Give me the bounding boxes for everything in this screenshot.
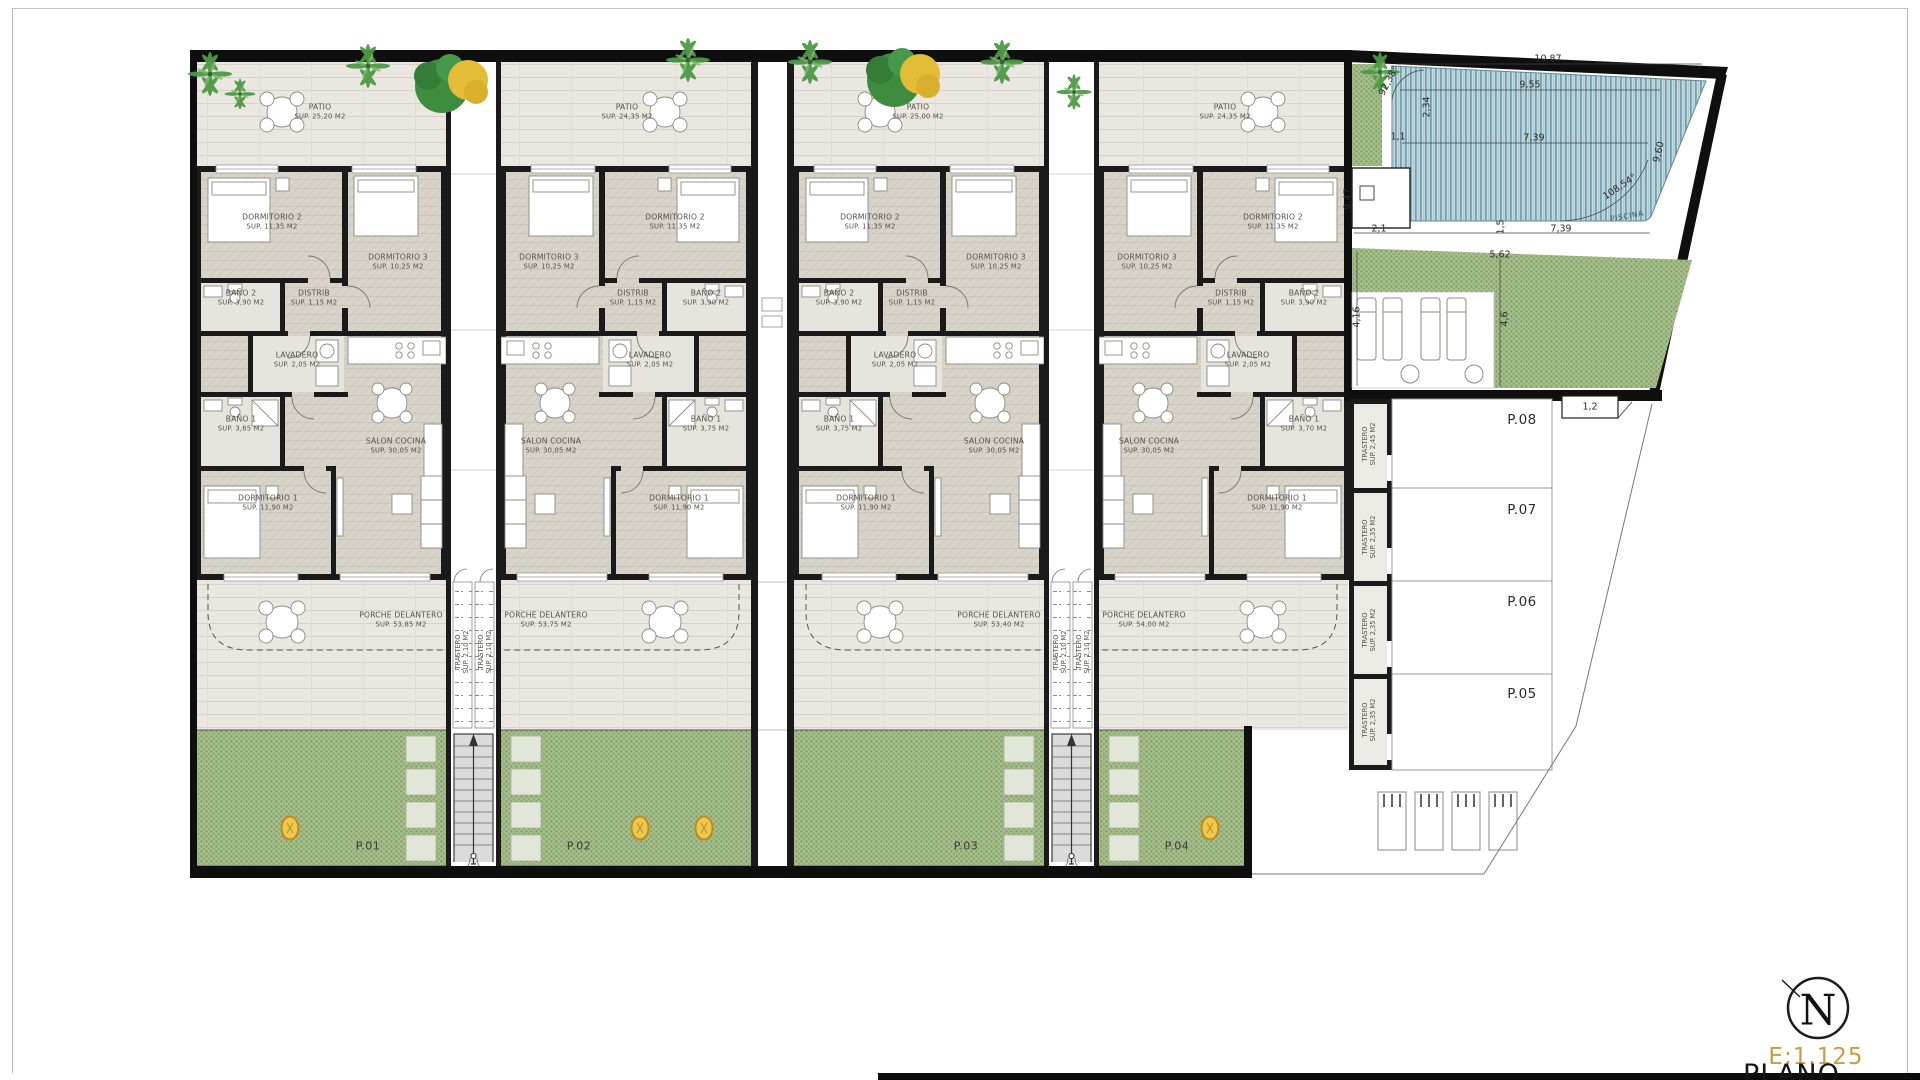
core2-trastero-a-label: TRASTEROSUP. 2,10 M2 [1052,631,1068,674]
room-label-distrib-4: DISTRIBSUP. 1,15 M2 [1208,289,1255,308]
plot-label-p03: P.03 [954,840,978,853]
room-label-salon-3: SALON COCINASUP. 30,05 M2 [964,437,1024,456]
dim-1-2: 1,2 [1582,402,1597,413]
storage-yards [1392,399,1552,770]
storage-label-p05: TRASTEROSUP. 2,35 M2 [1361,699,1377,742]
core2-trastero-b-label: TRASTEROSUP. 2,10 M2 [1075,631,1091,674]
plan-drawing [0,0,1920,1080]
room-label-lavadero-3: LAVADEROSUP. 2,05 M2 [872,351,919,370]
room-label-dorm3-2: DORMITORIO 3SUP. 10,25 M2 [519,253,579,272]
core1-trastero-b-label: TRASTEROSUP. 2,10 M2 [477,631,493,674]
dim-2-1: 2,1 [1371,224,1386,235]
yard-label-p07: P.07 [1507,502,1537,518]
dim-5-62: 5,62 [1489,250,1510,261]
plot-label-p02: P.02 [567,840,591,853]
room-label-distrib-2: DISTRIBSUP. 1,15 M2 [610,289,657,308]
dim-1-5: 1,5 [1496,219,1507,234]
sunbeds [1352,292,1494,388]
floor-plan-sheet: PATIOSUP. 25,20 M2 DORMITORIO 2SUP. 11,3… [0,0,1920,1080]
room-label-bano1-4: BAÑO 1SUP. 3,70 M2 [1281,415,1328,434]
pool-equipment-room [1352,168,1410,228]
room-label-lavadero-4: LAVADEROSUP. 2,05 M2 [1225,351,1272,370]
yard-label-p05: P.05 [1507,686,1537,702]
room-label-porche-2: PORCHE DELANTEROSUP. 53,75 M2 [504,611,588,630]
yard-label-p06: P.06 [1507,594,1537,610]
room-label-salon-4: SALON COCINASUP. 30,05 M2 [1119,437,1179,456]
room-label-salon-2: SALON COCINASUP. 30,05 M2 [521,437,581,456]
room-label-dorm2-2: DORMITORIO 2SUP. 11,35 M2 [645,213,705,232]
room-label-porche-1: PORCHE DELANTEROSUP. 53,85 M2 [359,611,443,630]
dim-9-47: 9,47 [1343,188,1354,209]
room-label-bano2-1: BAÑO 2SUP. 3,90 M2 [218,289,265,308]
dim-4-16: 4,16 [1352,306,1363,327]
dim-2-34: 2,34 [1422,96,1433,117]
room-label-dorm1-3: DORMITORIO 1SUP. 11,90 M2 [836,494,896,513]
room-label-bano2-3: BAÑO 2SUP. 3,90 M2 [816,289,863,308]
dim-9-55: 9,55 [1519,80,1540,91]
dim-1-1: 1,1 [1390,132,1405,143]
room-label-bano1-3: BAÑO 1SUP. 3,75 M2 [816,415,863,434]
room-label-bano1-2: BAÑO 1SUP. 3,75 M2 [683,415,730,434]
room-label-dorm2-3: DORMITORIO 2SUP. 11,35 M2 [840,213,900,232]
dim-10-87: 10,87 [1534,54,1561,65]
room-label-patio-3: PATIOSUP. 25,00 M2 [892,103,943,122]
room-label-salon-1: SALON COCINASUP. 30,05 M2 [366,437,426,456]
plot-label-p01: P.01 [356,840,380,853]
pool-sector [1352,64,1706,418]
north-letter: N [1800,986,1837,1035]
room-label-porche-4: PORCHE DELANTEROSUP. 54,00 M2 [1102,611,1186,630]
room-label-patio-2: PATIOSUP. 24,35 M2 [601,103,652,122]
room-label-patio-4: PATIOSUP. 24,35 M2 [1199,103,1250,122]
room-label-dorm3-4: DORMITORIO 3SUP. 10,25 M2 [1117,253,1177,272]
room-label-distrib-1: DISTRIBSUP. 1,15 M2 [291,289,338,308]
room-label-dorm3-1: DORMITORIO 3SUP. 10,25 M2 [368,253,428,272]
storage-label-p08: TRASTEROSUP. 2,45 M2 [1361,423,1377,466]
dim-7-39-mid: 7,39 [1523,133,1544,144]
room-label-distrib-3: DISTRIBSUP. 1,15 M2 [889,289,936,308]
room-label-dorm1-1: DORMITORIO 1SUP. 11,90 M2 [238,494,298,513]
yard-label-p08: P.08 [1507,412,1537,428]
room-label-dorm3-3: DORMITORIO 3SUP. 10,25 M2 [966,253,1026,272]
room-label-porche-3: PORCHE DELANTEROSUP. 53,40 M2 [957,611,1041,630]
plano-number-label: PLANO Nº [1743,1059,1861,1080]
building-divider [751,62,794,866]
storage-label-p06: TRASTEROSUP. 2,35 M2 [1361,609,1377,652]
plot-label-p04: P.04 [1165,840,1189,853]
room-label-bano2-4: BAÑO 2SUP. 3,90 M2 [1281,289,1328,308]
room-label-dorm1-4: DORMITORIO 1SUP. 11,90 M2 [1247,494,1307,513]
room-label-bano2-2: BAÑO 2SUP. 3,90 M2 [683,289,730,308]
room-label-dorm2-1: DORMITORIO 2SUP. 11,35 M2 [242,213,302,232]
storage-label-p07: TRASTEROSUP. 2,35 M2 [1361,516,1377,559]
dim-4-6: 4,6 [1500,311,1511,326]
parking-stalls [1378,792,1517,850]
core1-trastero-a-label: TRASTEROSUP. 2,10 M2 [454,631,470,674]
room-label-patio-1: PATIOSUP. 25,20 M2 [294,103,345,122]
room-label-lavadero-1: LAVADEROSUP. 2,05 M2 [274,351,321,370]
room-label-dorm1-2: DORMITORIO 1SUP. 11,90 M2 [649,494,709,513]
dim-7-39-bottom: 7,39 [1550,224,1571,235]
room-label-bano1-1: BAÑO 1SUP. 3,65 M2 [218,415,265,434]
room-label-dorm2-4: DORMITORIO 2SUP. 11,35 M2 [1243,213,1303,232]
room-label-lavadero-2: LAVADEROSUP. 2,05 M2 [627,351,674,370]
